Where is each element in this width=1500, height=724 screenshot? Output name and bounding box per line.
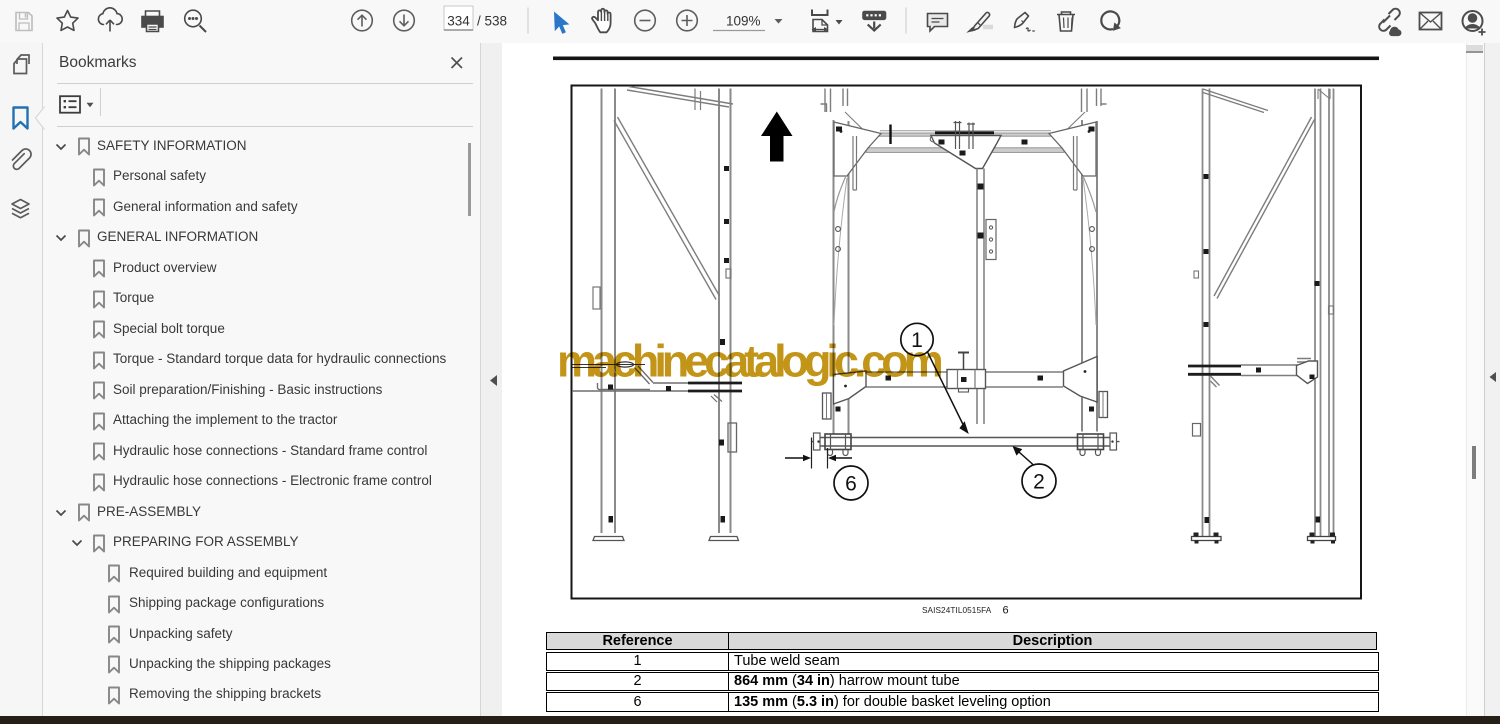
- svg-text:2: 2: [1033, 471, 1045, 494]
- svg-text:SAIS24TIL0515FA: SAIS24TIL0515FA: [922, 606, 992, 615]
- svg-text:machinecatalogic.com: machinecatalogic.com: [557, 336, 942, 387]
- svg-text:/ 538: / 538: [477, 14, 507, 29]
- svg-text:109%: 109%: [726, 14, 761, 29]
- svg-text:334: 334: [447, 14, 470, 29]
- svg-text:6: 6: [1003, 605, 1009, 617]
- svg-text:6: 6: [845, 473, 857, 496]
